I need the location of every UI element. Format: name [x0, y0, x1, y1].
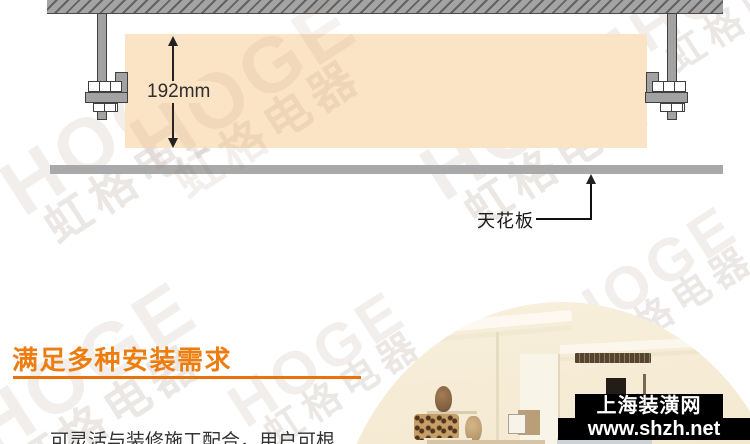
section-heading: 满足多种安装需求	[12, 340, 232, 377]
cabinet	[427, 440, 545, 444]
watermark: HOGE 虹格电器	[121, 0, 390, 213]
hanger-nut-lower	[93, 103, 118, 112]
ac-vent-grille	[575, 353, 651, 363]
hanger-plate	[645, 92, 688, 103]
hanger-nut	[88, 81, 122, 92]
hanger-plate	[85, 92, 128, 103]
heading-underline	[13, 376, 361, 379]
section-body-text: 可灵活与装修施工配合，用户可根	[50, 426, 335, 444]
concrete-slab	[47, 0, 723, 14]
hanger-nut	[652, 81, 686, 92]
switch-plate	[508, 414, 526, 434]
leader-line-vertical	[590, 183, 592, 220]
dimension-label: 192mm	[145, 81, 212, 103]
photo-watermark-site-url: www.shzh.net	[558, 418, 750, 440]
arrow-up-icon	[168, 36, 178, 46]
hanger-nut-lower	[660, 103, 685, 112]
leader-line-horizontal	[536, 218, 592, 220]
ceiling-label: 天花板	[477, 207, 534, 233]
photo-watermark-site-name: 上海装潢网	[575, 394, 723, 418]
leopard-pillow	[414, 414, 459, 440]
shelf-unit	[496, 332, 499, 444]
page: HOGE 虹格电器 HOGE 虹格电器 HOGE 虹格电器 HOGE 虹格电器 …	[0, 0, 750, 444]
arrow-up-icon	[586, 174, 596, 184]
decor-vase	[435, 386, 452, 412]
